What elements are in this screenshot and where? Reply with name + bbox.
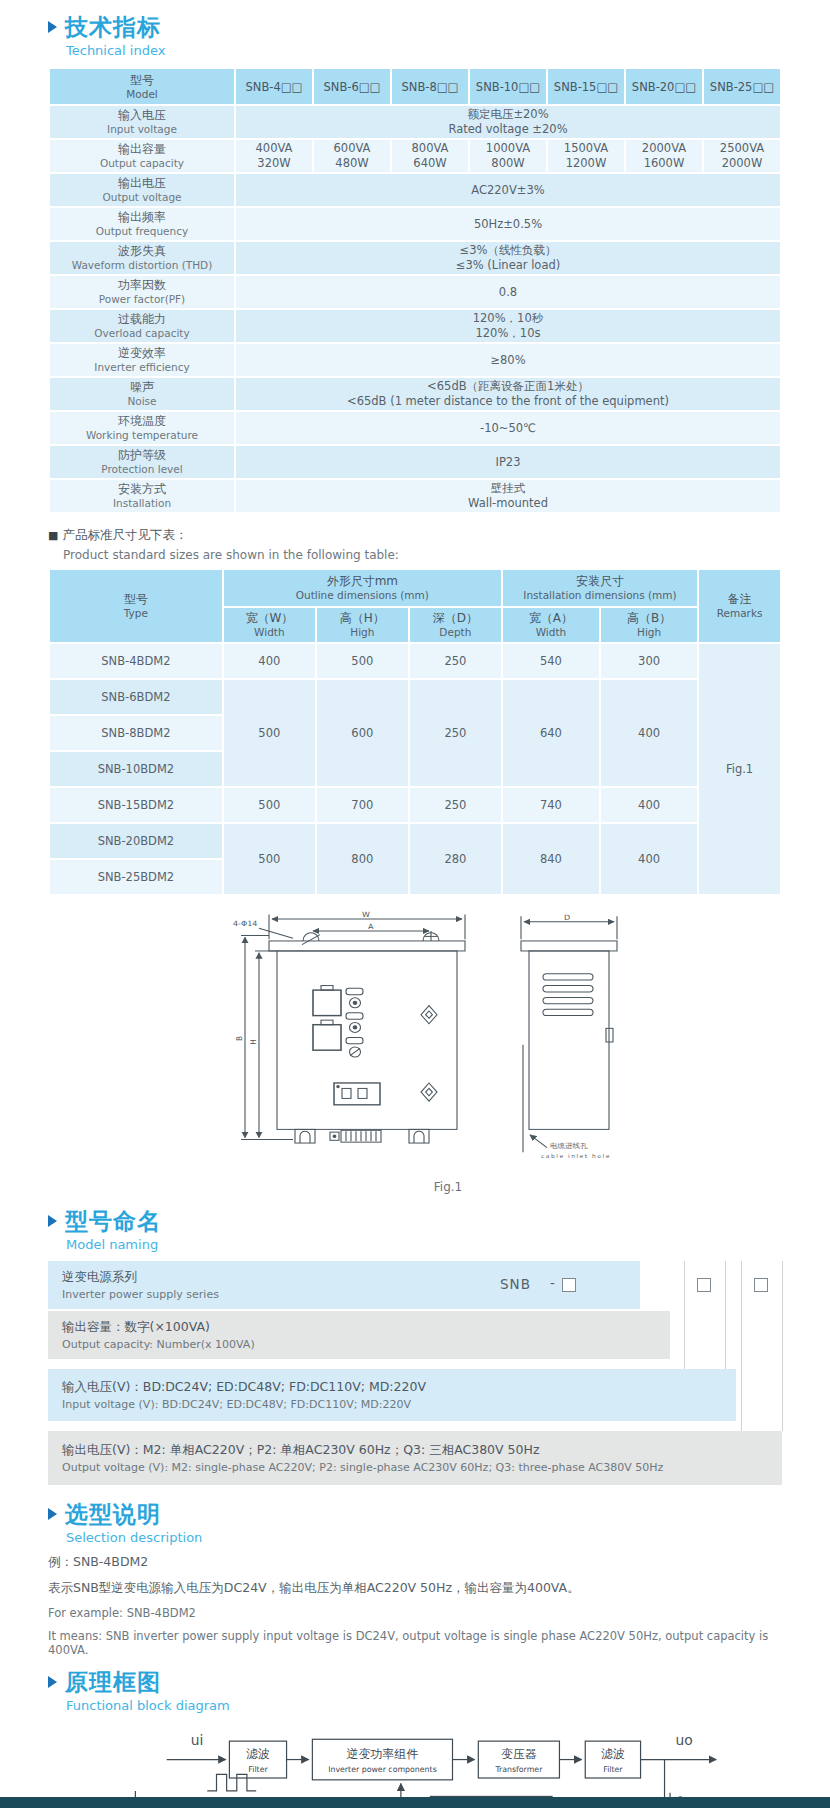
spec-value-cell: IP23 [236, 446, 780, 478]
figure-caption: Fig.1 [233, 1180, 663, 1194]
naming-row-en: Inverter power supply series [62, 1288, 626, 1302]
dim-header-row-1: 型号Type 外形尺寸mmOutline dimensions (mm) 安装尺… [50, 570, 780, 606]
dim-value-cell: 250 [410, 788, 501, 822]
dim-value-cell: 400 [601, 788, 697, 822]
model-code-box-icon [562, 1278, 576, 1292]
naming-row-en: Output capacity: Number(x 100VA) [62, 1338, 656, 1352]
section-technical-header: 技术指标 Technical index [48, 14, 782, 58]
spec-label-cell: 逆变效率Inverter efficiency [50, 344, 234, 376]
dim-label-w: W [362, 911, 370, 920]
block-diagram: ui uo 滤波 Filter 逆变功率组件 Inverter power co… [118, 1719, 782, 1808]
section-arrow-icon [48, 1508, 57, 1520]
spec-value-cell: 400VA320W [236, 140, 312, 172]
model-header-cell: SNB-20□□ [626, 69, 702, 104]
dim-type-cell: SNB-4BDM2 [50, 644, 222, 678]
section-diagram-header: 原理框图 Functional block diagram [48, 1669, 782, 1713]
spec-label-cell: 环境温度Working temperature [50, 412, 234, 444]
section-diagram-title: 原理框图 [48, 1669, 782, 1695]
spec-label-cell: 安装方式Installation [50, 480, 234, 512]
model-header-cell: SNB-15□□ [548, 69, 624, 104]
dim-value-cell: 400 [601, 824, 697, 894]
dim-value-cell: 280 [410, 824, 501, 894]
dim-type-cell: SNB-6BDM2 [50, 680, 222, 714]
naming-row-output-voltage: 输出电压(V)：M2: 单相AC220V；P2: 单相AC230V 60Hz；Q… [48, 1431, 782, 1485]
spec-label-cell: 输出容量Output capacity [50, 140, 234, 172]
dim-header-d: 深（D）Depth [410, 608, 501, 642]
spec-row-power-factor: 功率因数Power factor(PF) 0.8 [50, 276, 780, 308]
naming-row-zh: 输入电压(V)：BD:DC24V; ED:DC48V; FD:DC110V; M… [62, 1379, 722, 1395]
section-naming-header: 型号命名 Model naming [48, 1208, 782, 1252]
spec-value-cell: 2500VA2000W [704, 140, 780, 172]
page-content: 技术指标 Technical index 型号Model SNB-4□□ SNB… [0, 0, 830, 1808]
dim-value-cell: 500 [317, 644, 408, 678]
model-header-cell: SNB-8□□ [392, 69, 468, 104]
spec-row-noise: 噪声Noise <65dB（距离设备正面1米处）<65dB (1 meter d… [50, 378, 780, 410]
dim-value-cell: 500 [224, 680, 315, 786]
spec-value-cell: ≥80% [236, 344, 780, 376]
naming-row-zh: 输出容量：数字(×100VA) [62, 1319, 656, 1335]
spec-value-cell: 0.8 [236, 276, 780, 308]
spec-header-row: 型号Model SNB-4□□ SNB-6□□ SNB-8□□ SNB-10□□… [50, 69, 780, 104]
section-selection-header: 选型说明 Selection description [48, 1501, 782, 1545]
inverter-label-en: Inverter power components [328, 1765, 437, 1774]
footer-bar [0, 1797, 830, 1808]
dim-value-cell: 400 [224, 644, 315, 678]
dim-value-cell: 640 [503, 680, 599, 786]
dim-label-b: B [235, 1036, 244, 1041]
naming-row-en: Input voltage (V): BD:DC24V; ED:DC48V; F… [62, 1398, 722, 1412]
spec-value-cell: 800VA640W [392, 140, 468, 172]
model-code-box-icon [697, 1278, 711, 1292]
section-selection-title-zh: 选型说明 [65, 1501, 161, 1527]
section-arrow-icon [48, 1676, 57, 1688]
dim-row: SNB-4BDM2 400 500 250 540 300 Fig.1 [50, 644, 780, 678]
spec-row-output-capacity: 输出容量Output capacity 400VA320W 600VA480W … [50, 140, 780, 172]
dim-header-remarks: 备注Remarks [699, 570, 780, 642]
dim-value-cell: 800 [317, 824, 408, 894]
spec-value-cell: <65dB（距离设备正面1米处）<65dB (1 meter distance … [236, 378, 780, 410]
selection-example-en: For example: SNB-4BDM2 [48, 1606, 782, 1620]
spec-label-cell: 输入电压Input voltage [50, 106, 234, 138]
dim-header-b: 高（B）High [601, 608, 697, 642]
section-selection-title: 选型说明 [48, 1501, 782, 1527]
sizes-note-en: Product standard sizes are shown in the … [63, 548, 782, 562]
dim-row: SNB-15BDM2 500 700 250 740 400 [50, 788, 780, 822]
dim-label-a: A [368, 922, 374, 931]
spec-row-output-frequency: 输出频率Output frequency 50Hz±0.5% [50, 208, 780, 240]
filter2-label-en: Filter [603, 1765, 623, 1774]
section-selection-title-en: Selection description [66, 1530, 782, 1545]
dim-value-cell: 740 [503, 788, 599, 822]
spec-value-cell: 600VA480W [314, 140, 390, 172]
input-signal-label: ui [191, 1732, 204, 1748]
dim-value-cell: 250 [410, 644, 501, 678]
dim-type-cell: SNB-25BDM2 [50, 860, 222, 894]
section-naming-title-en: Model naming [66, 1237, 782, 1252]
dim-value-cell: 300 [601, 644, 697, 678]
dim-value-cell: 840 [503, 824, 599, 894]
naming-row-en: Output voltage (V): M2: single-phase AC2… [62, 1461, 768, 1475]
dim-value-cell: 500 [224, 788, 315, 822]
spec-value-cell: 1000VA800W [470, 140, 546, 172]
spec-row-thd: 波形失真Waveform distortion (THD) ≤3%（线性负载）≤… [50, 242, 780, 274]
transformer-label-zh: 变压器 [501, 1747, 537, 1761]
spec-label-cell: 过载能力Overload capacity [50, 310, 234, 342]
dim-row: SNB-6BDM2 500 600 250 640 400 [50, 680, 780, 714]
dim-header-w: 宽（W）Width [224, 608, 315, 642]
model-code-dash: - [550, 1275, 555, 1291]
spec-value-cell: AC220V±3% [236, 174, 780, 206]
spec-row-efficiency: 逆变效率Inverter efficiency ≥80% [50, 344, 780, 376]
model-header-cell: SNB-6□□ [314, 69, 390, 104]
selection-example-zh: 例：SNB-4BDM2 [48, 1554, 782, 1571]
naming-row-zh: 逆变电源系列 [62, 1269, 626, 1285]
section-arrow-icon [48, 1215, 57, 1227]
dim-value-cell: 500 [224, 824, 315, 894]
model-naming-table: 逆变电源系列 Inverter power supply series 输出容量… [48, 1261, 782, 1485]
spec-value-cell: 壁挂式Wall-mounted [236, 480, 780, 512]
spec-row-input-voltage: 输入电压Input voltage 额定电压±20%Rated voltage … [50, 106, 780, 138]
filter1-label-en: Filter [248, 1765, 268, 1774]
spec-value-cell: 50Hz±0.5% [236, 208, 780, 240]
spec-label-cell: 噪声Noise [50, 378, 234, 410]
spec-row-temperature: 环境温度Working temperature -10~50℃ [50, 412, 780, 444]
section-naming-title-zh: 型号命名 [65, 1208, 161, 1234]
section-diagram-title-zh: 原理框图 [65, 1669, 161, 1695]
spec-header-model-label: 型号Model [50, 69, 234, 104]
section-arrow-icon [48, 21, 57, 33]
dim-value-cell: 400 [601, 680, 697, 786]
spec-label-cell: 输出频率Output frequency [50, 208, 234, 240]
model-header-cell: SNB-10□□ [470, 69, 546, 104]
square-bullet-icon: ■ [48, 529, 58, 542]
dimensions-table: 型号Type 外形尺寸mmOutline dimensions (mm) 安装尺… [48, 568, 782, 896]
naming-row-zh: 输出电压(V)：M2: 单相AC220V；P2: 单相AC230V 60Hz；Q… [62, 1442, 768, 1458]
output-signal-label: uo [676, 1732, 693, 1748]
dim-type-cell: SNB-10BDM2 [50, 752, 222, 786]
filter1-label-zh: 滤波 [246, 1747, 270, 1761]
selection-desc-en: It means: SNB inverter power supply inpu… [48, 1629, 782, 1657]
sizes-note-zh: ■产品标准尺寸见下表： [48, 527, 782, 544]
dim-row: SNB-20BDM2 500 800 280 840 400 [50, 824, 780, 858]
naming-row-input-voltage: 输入电压(V)：BD:DC24V; ED:DC48V; FD:DC110V; M… [48, 1369, 736, 1421]
sizes-note: ■产品标准尺寸见下表： Product standard sizes are s… [48, 527, 782, 562]
spec-row-overload: 过载能力Overload capacity 120%，10秒120%，10s [50, 310, 780, 342]
spec-row-protection: 防护等级Protection level IP23 [50, 446, 780, 478]
dim-type-cell: SNB-8BDM2 [50, 716, 222, 750]
spec-value-cell: ≤3%（线性负载）≤3% (Linear load) [236, 242, 780, 274]
dim-type-cell: SNB-20BDM2 [50, 824, 222, 858]
block-diagram-svg: ui uo 滤波 Filter 逆变功率组件 Inverter power co… [118, 1719, 728, 1808]
spec-label-cell: 功率因数Power factor(PF) [50, 276, 234, 308]
holes-label: 4-Φ14 [233, 920, 258, 929]
section-technical-title-zh: 技术指标 [65, 14, 161, 40]
dim-header-a: 宽（A）Width [503, 608, 599, 642]
dim-value-cell: 600 [317, 680, 408, 786]
spec-value-cell: -10~50℃ [236, 412, 780, 444]
inverter-label-zh: 逆变功率组件 [347, 1747, 419, 1761]
section-naming-title: 型号命名 [48, 1208, 782, 1234]
dim-header-h: 高（H）High [317, 608, 408, 642]
section-technical-title-en: Technical index [66, 43, 782, 58]
dim-label-d: D [564, 913, 570, 922]
dim-header-install: 安装尺寸Installation dimensions (mm) [503, 570, 697, 606]
dim-value-cell: 250 [410, 680, 501, 786]
spec-label-cell: 防护等级Protection level [50, 446, 234, 478]
dim-value-cell: 540 [503, 644, 599, 678]
spec-label-cell: 输出电压Output voltage [50, 174, 234, 206]
spec-value-cell: 1500VA1200W [548, 140, 624, 172]
transformer-label-en: Transformer [494, 1765, 543, 1774]
dim-value-cell: 700 [317, 788, 408, 822]
spec-value-cell: 额定电压±20%Rated voltage ±20% [236, 106, 780, 138]
section-diagram-title-en: Functional block diagram [66, 1698, 782, 1713]
spec-row-output-voltage: 输出电压Output voltage AC220V±3% [50, 174, 780, 206]
dim-remarks-cell: Fig.1 [699, 644, 780, 894]
spec-label-cell: 波形失真Waveform distortion (THD) [50, 242, 234, 274]
filter2-label-zh: 滤波 [601, 1747, 625, 1761]
cabinet-drawing: W A 4-Φ14 B H D 电缆进线孔 cable inlet hole [233, 910, 663, 1174]
spec-row-installation: 安装方式Installation 壁挂式Wall-mounted [50, 480, 780, 512]
model-header-cell: SNB-4□□ [236, 69, 312, 104]
selection-desc-zh: 表示SNB型逆变电源输入电压为DC24V，输出电压为单相AC220V 50Hz，… [48, 1580, 782, 1597]
figure-1: W A 4-Φ14 B H D 电缆进线孔 cable inlet hole F… [233, 910, 673, 1194]
cable-inlet-label-zh: 电缆进线孔 [550, 1141, 588, 1150]
dim-type-cell: SNB-15BDM2 [50, 788, 222, 822]
dim-header-type: 型号Type [50, 570, 222, 642]
cable-inlet-label-en: cable inlet hole [541, 1153, 611, 1159]
dim-label-h: H [249, 1039, 258, 1044]
section-technical-title: 技术指标 [48, 14, 782, 40]
naming-row-capacity: 输出容量：数字(×100VA) Output capacity: Number(… [48, 1311, 670, 1359]
model-code-box-icon [754, 1278, 768, 1292]
spec-value-cell: 2000VA1600W [626, 140, 702, 172]
spec-value-cell: 120%，10秒120%，10s [236, 310, 780, 342]
model-header-cell: SNB-25□□ [704, 69, 780, 104]
dim-header-outline: 外形尺寸mmOutline dimensions (mm) [224, 570, 501, 606]
spec-table: 型号Model SNB-4□□ SNB-6□□ SNB-8□□ SNB-10□□… [48, 67, 782, 514]
model-code-prefix: SNB [500, 1276, 531, 1292]
